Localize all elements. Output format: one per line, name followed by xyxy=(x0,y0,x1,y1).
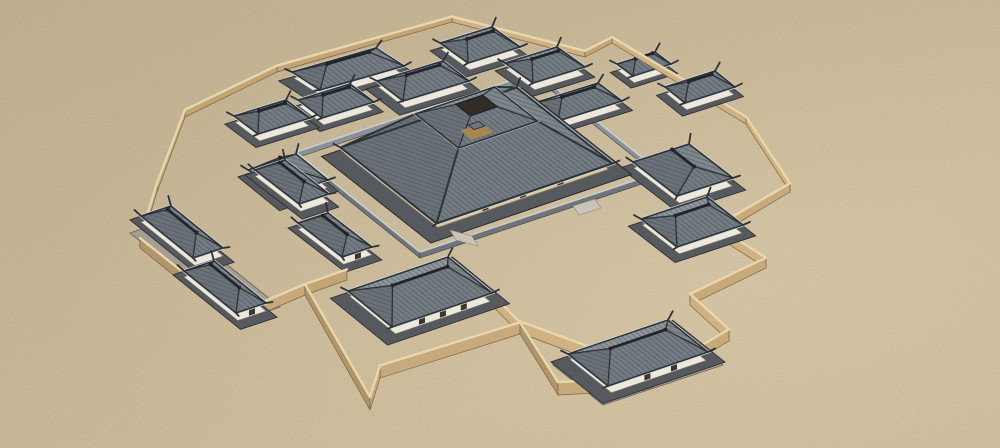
model-viewport xyxy=(0,0,1000,448)
scene-svg xyxy=(0,0,1000,448)
